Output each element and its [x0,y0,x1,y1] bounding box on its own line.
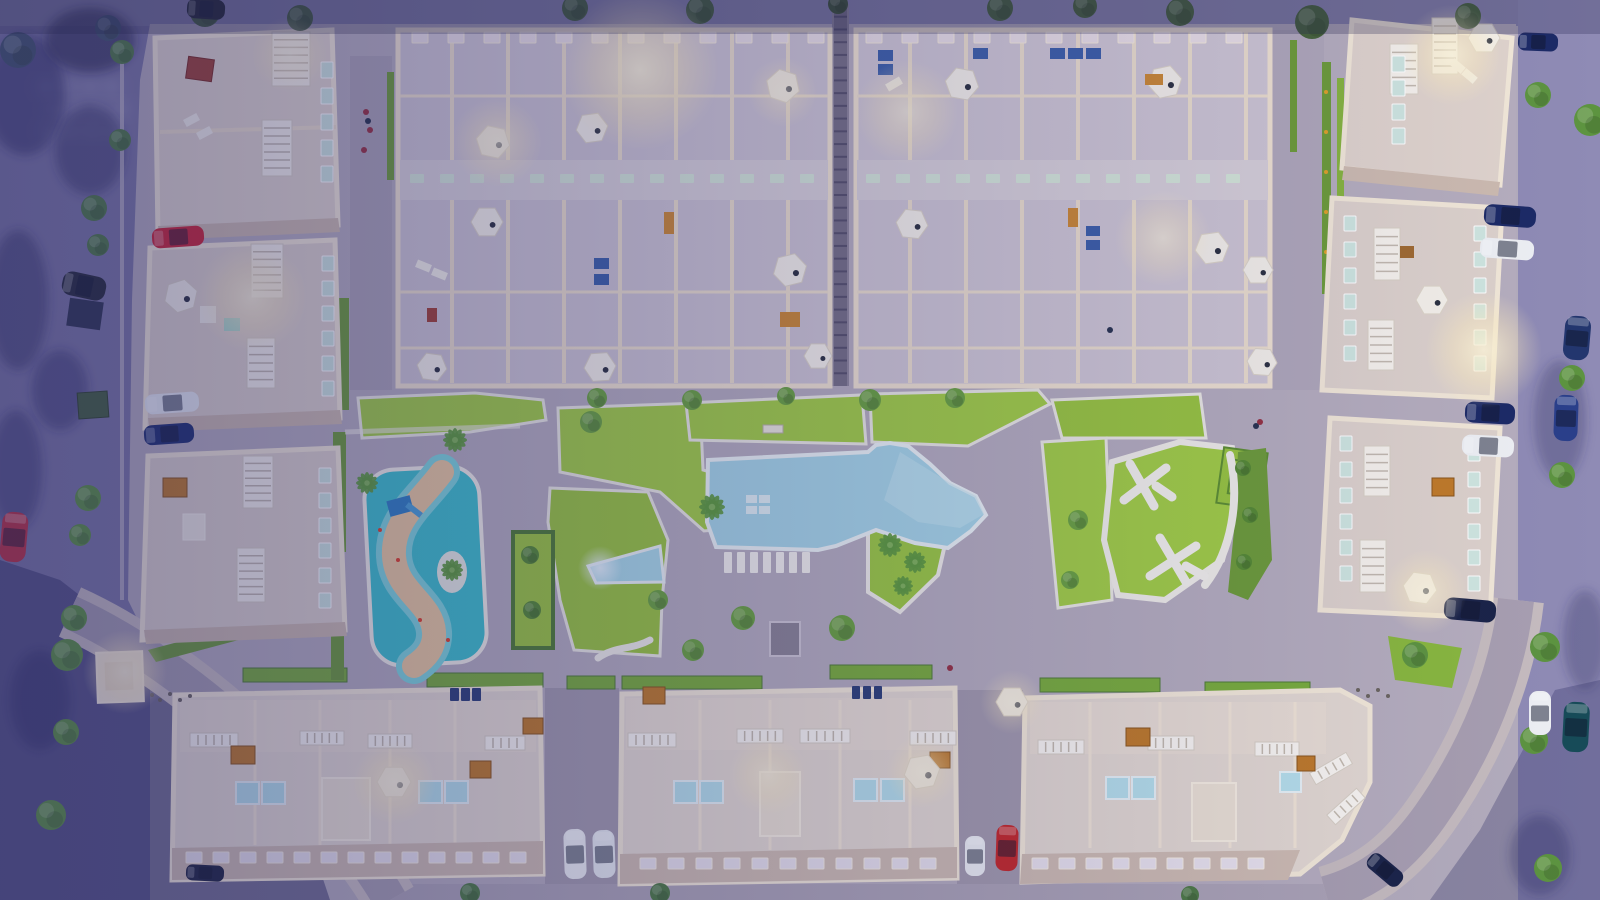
dusk-shade-left [0,0,1600,900]
aerial-dusk-render: Aerial dusk 3D render of a residential c… [0,0,1600,900]
site-aerial-view [0,0,1600,900]
dusk-shade-top [0,0,1600,34]
